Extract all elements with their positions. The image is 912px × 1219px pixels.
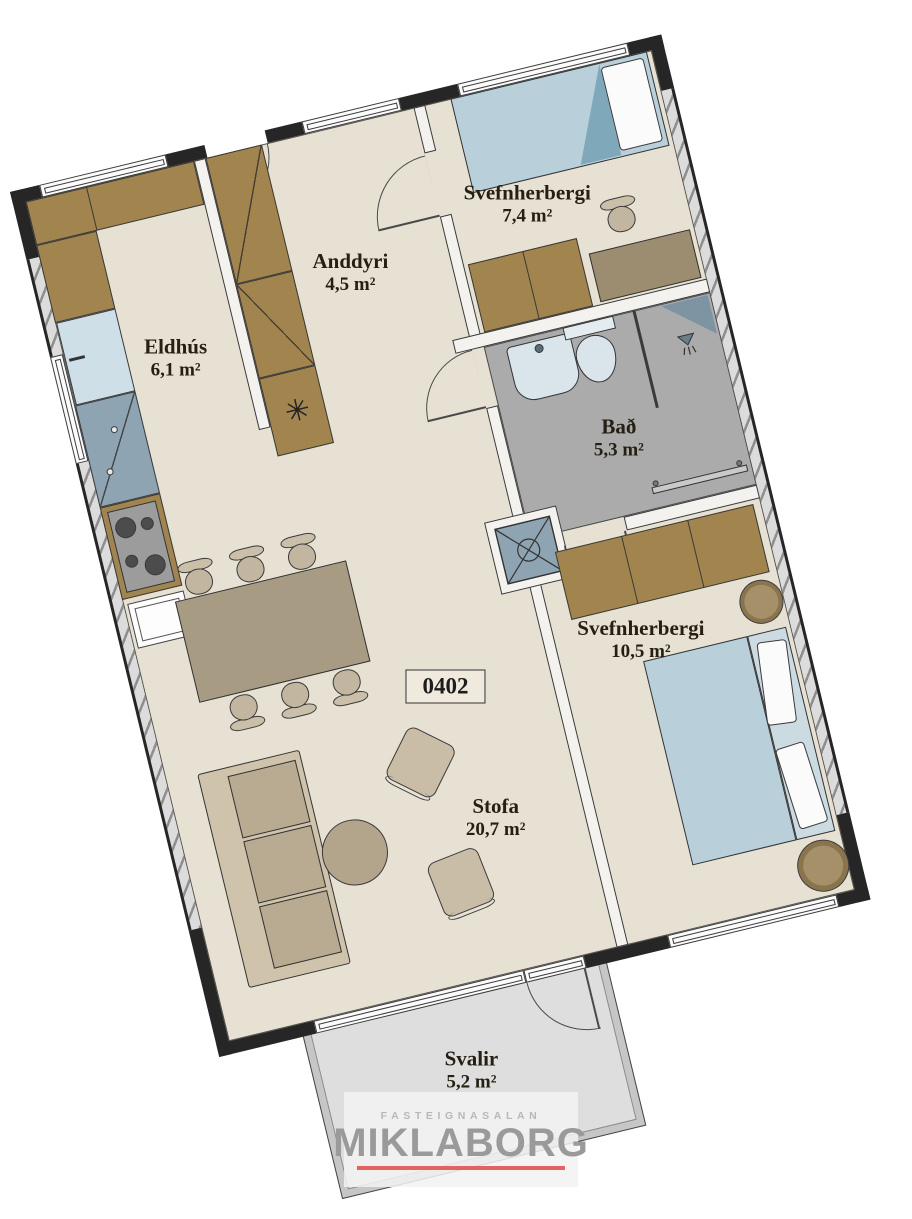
agency-watermark: FASTEIGNASALAN MIKLABORG bbox=[344, 1092, 578, 1187]
apartment-number: 0402 bbox=[405, 669, 485, 703]
room-label-bedroom1: Svefnherbergi 7,4 m² bbox=[464, 181, 591, 226]
room-name: Stofa bbox=[466, 795, 526, 819]
apartment-plan: ✳ bbox=[10, 34, 870, 1057]
floor-plan-page: { "meta": { "apartment_number": "0402" }… bbox=[0, 0, 912, 1200]
room-name: Eldhús bbox=[144, 335, 207, 359]
room-label-bad: Bað 5,3 m² bbox=[594, 415, 644, 460]
room-name: Svefnherbergi bbox=[464, 181, 591, 205]
agency-logo: MIKLABORG bbox=[333, 1123, 589, 1163]
room-name: Bað bbox=[594, 415, 644, 439]
sofa-cushion bbox=[259, 890, 342, 969]
room-name: Anddyri bbox=[312, 250, 388, 274]
room-area: 5,3 m² bbox=[594, 439, 644, 460]
room-label-bedroom2: Svefnherbergi 10,5 m² bbox=[577, 617, 704, 662]
agency-tagline: FASTEIGNASALAN bbox=[381, 1110, 542, 1122]
room-label-svalir: Svalir 5,2 m² bbox=[445, 1048, 499, 1093]
room-area: 4,5 m² bbox=[312, 273, 388, 294]
sofa-cushion bbox=[227, 760, 310, 839]
room-label-eldhus: Eldhús 6,1 m² bbox=[144, 335, 207, 380]
room-name: Svefnherbergi bbox=[577, 617, 704, 641]
room-area: 7,4 m² bbox=[464, 205, 591, 226]
room-area: 5,2 m² bbox=[445, 1071, 499, 1092]
sofa-cushion bbox=[243, 825, 326, 904]
room-name: Svalir bbox=[445, 1048, 499, 1072]
room-label-stofa: Stofa 20,7 m² bbox=[466, 795, 526, 840]
room-area: 10,5 m² bbox=[577, 640, 704, 661]
room-area: 6,1 m² bbox=[144, 359, 207, 380]
logo-underline bbox=[357, 1166, 565, 1170]
room-area: 20,7 m² bbox=[466, 818, 526, 839]
room-label-anddyri: Anddyri 4,5 m² bbox=[312, 250, 388, 295]
